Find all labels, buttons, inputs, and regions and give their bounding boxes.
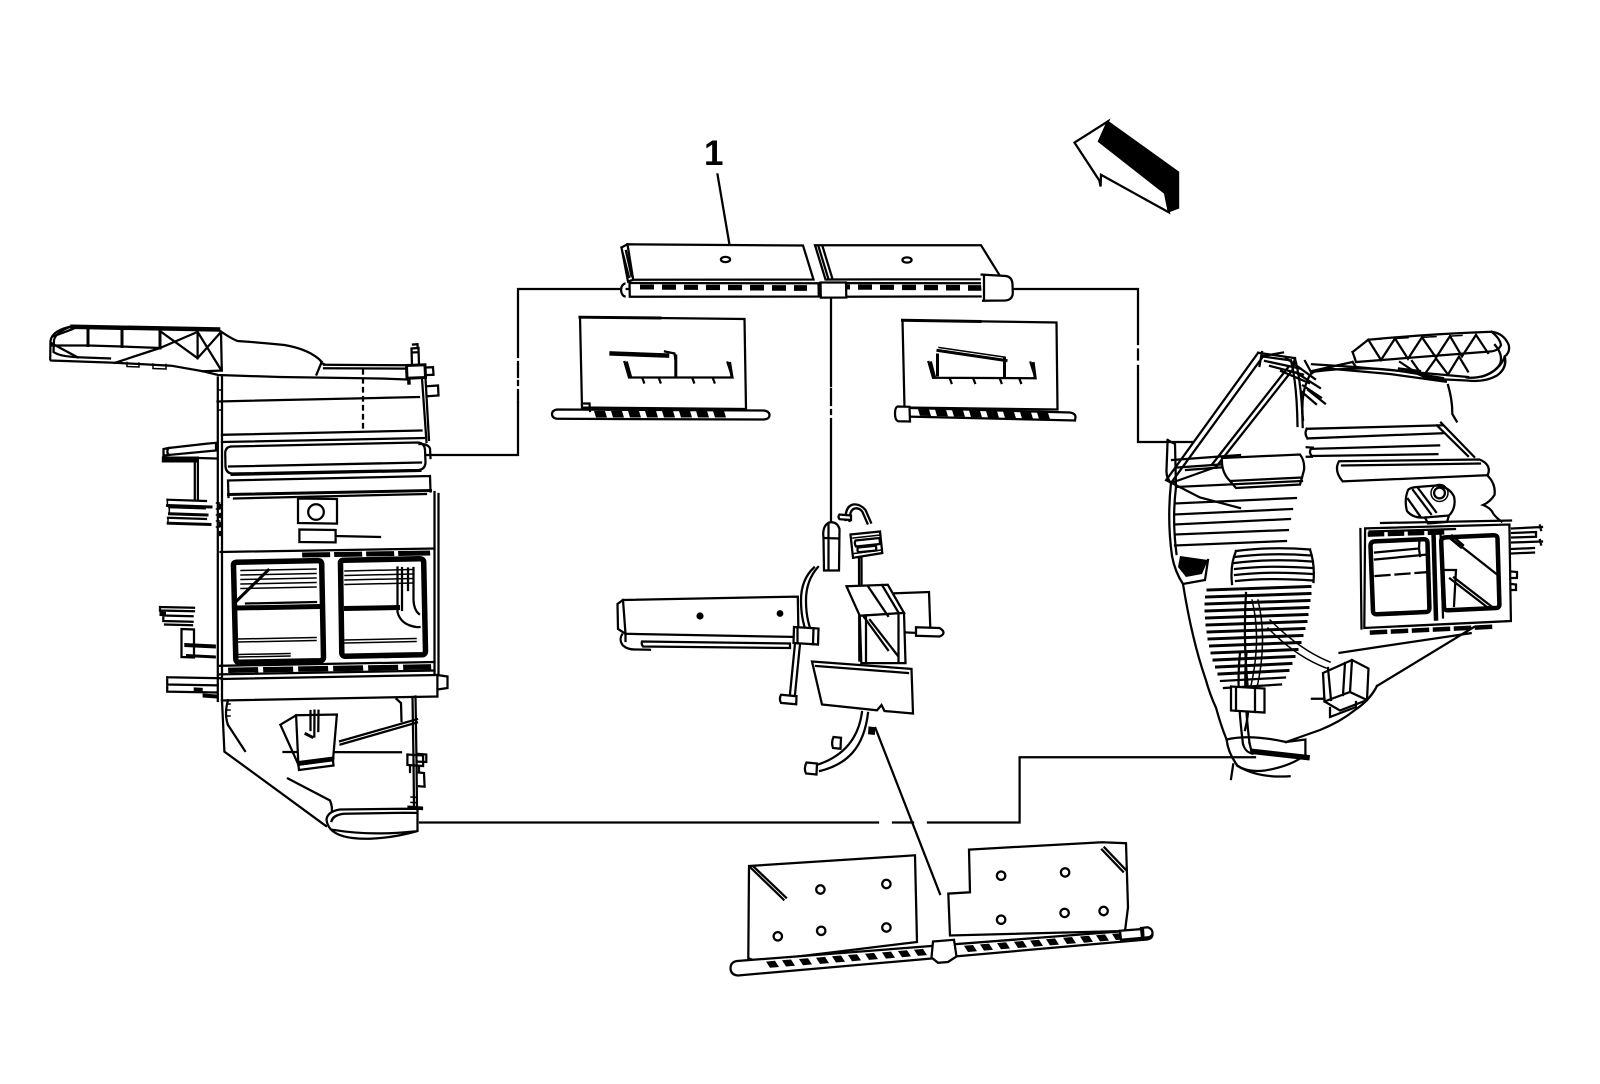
svg-text:1: 1: [704, 134, 723, 173]
